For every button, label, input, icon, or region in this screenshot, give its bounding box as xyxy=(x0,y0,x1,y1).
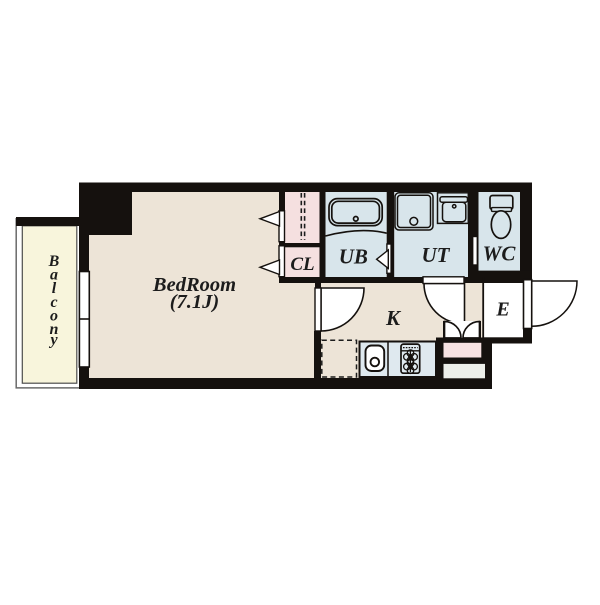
svg-text:UT: UT xyxy=(422,243,451,267)
svg-text:(7.1J): (7.1J) xyxy=(170,291,220,313)
svg-text:CL: CL xyxy=(290,254,314,275)
svg-text:WC: WC xyxy=(483,242,517,266)
svg-text:UB: UB xyxy=(339,245,368,269)
svg-text:E: E xyxy=(495,298,509,320)
svg-text:K: K xyxy=(385,306,402,330)
svg-text:y: y xyxy=(48,332,58,349)
